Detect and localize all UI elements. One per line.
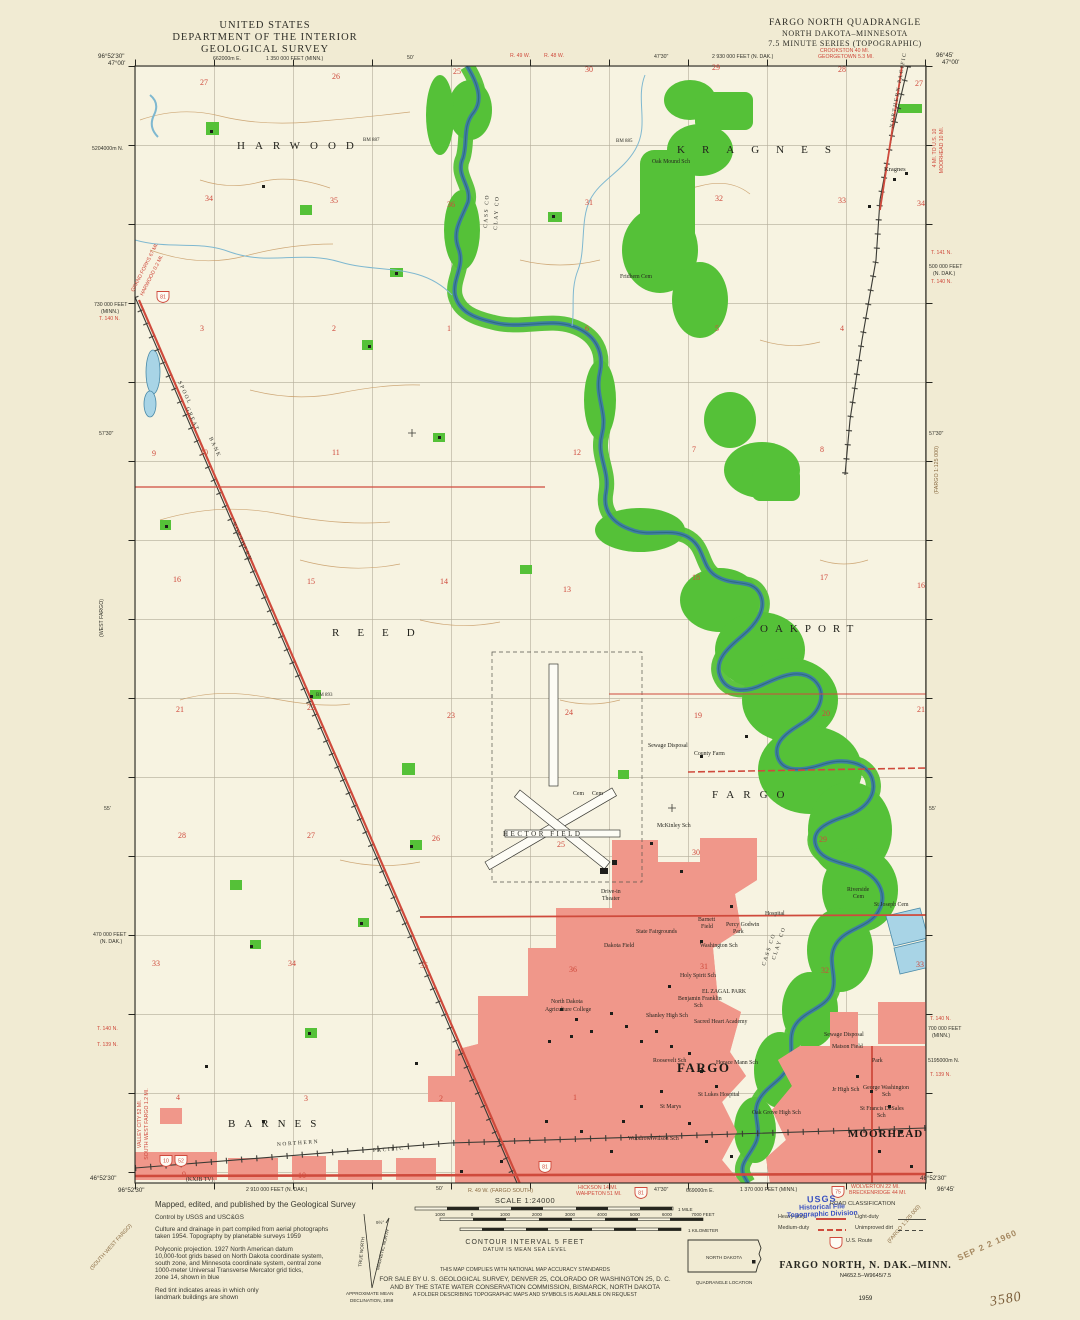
map-label: Drive-in	[601, 889, 621, 895]
map-label: 96°52'30"	[118, 1187, 145, 1194]
route-number: 81	[542, 1165, 548, 1171]
map-label: 1	[447, 324, 451, 333]
map-label: VALLEY CITY 52 MI.	[137, 1100, 143, 1148]
map-label: 27	[307, 831, 315, 840]
map-label: 33	[152, 959, 160, 968]
map-label: 36	[569, 965, 577, 974]
map-label: KRAGNES	[677, 144, 848, 156]
map-label: 1 KILOMETER	[688, 1228, 719, 1233]
map-label: Cem	[573, 791, 584, 797]
map-label: BM 887	[363, 138, 380, 143]
map-label: 30	[692, 848, 700, 857]
map-label: Cem	[592, 791, 603, 797]
map-label: 10	[298, 1171, 306, 1180]
map-label: 96°52'30"	[98, 53, 125, 60]
map-label: Oak Mound Sch	[652, 159, 690, 165]
map-label: 9	[152, 449, 156, 458]
map-label: OAKPORT	[760, 623, 860, 635]
map-label: 500 000 FEET	[929, 264, 963, 270]
map-label: 31	[700, 962, 708, 971]
map-label: 8	[820, 445, 824, 454]
map-label: 57'30"	[99, 431, 114, 437]
map-label: 21	[917, 705, 925, 714]
map-label: 7000 FEET	[691, 1212, 714, 1217]
map-label: BM 893	[316, 693, 333, 698]
map-label: Roosevelt Sch	[653, 1058, 686, 1064]
quad-states: NORTH DAKOTA–MINNESOTA	[728, 29, 962, 39]
unimproved-dirt-line-sample	[898, 1230, 926, 1231]
map-label: Field	[701, 924, 713, 930]
map-label: T. 140 N.	[99, 316, 120, 322]
map-label: Riverside	[847, 887, 870, 893]
map-label: Park	[733, 929, 744, 935]
usgs-historical-stamp: USGS Historical File Topographic Divisio…	[766, 1192, 879, 1220]
contour-interval: CONTOUR INTERVAL 5 FEET	[310, 1239, 740, 1246]
topo-map-svg: 811052818175 HARWOODKRAGNESREEDOAKPORTFA…	[0, 0, 1080, 1320]
heavy-duty-line-sample	[816, 1218, 846, 1220]
map-label: 29	[819, 835, 827, 844]
map-label: 47°00'	[942, 59, 959, 66]
map-label: Barnett	[698, 917, 715, 923]
us-route-shield: 81	[157, 292, 169, 303]
quad-series: 7.5 MINUTE SERIES (TOPOGRAPHIC)	[728, 39, 962, 49]
map-label: MOORHEAD	[848, 1128, 923, 1140]
map-label: Kragnes	[884, 166, 906, 173]
map-sheet: 811052818175 HARWOODKRAGNESREEDOAKPORTFA…	[0, 0, 1080, 1320]
map-label: 35	[330, 196, 338, 205]
datum-note: DATUM IS MEAN SEA LEVEL	[310, 1247, 740, 1253]
map-label: NORTH DAKOTA	[706, 1255, 743, 1260]
map-label: Sch	[882, 1092, 891, 1098]
map-label: (WEST FARGO)	[99, 599, 105, 637]
map-label: 5	[715, 324, 719, 333]
map-label: 4000	[597, 1212, 608, 1217]
map-label: 23	[447, 711, 455, 720]
map-label: 2000	[532, 1212, 543, 1217]
map-label: 33	[838, 196, 846, 205]
map-label: BM 885	[616, 139, 633, 144]
sheet-title: FARGO NORTH, N. DAK.–MINN.	[768, 1260, 963, 1271]
agency-line-2: DEPARTMENT OF THE INTERIOR	[140, 32, 390, 44]
map-label: 18	[692, 573, 700, 582]
scale-label: SCALE 1:24000	[310, 1196, 740, 1205]
map-label: 25	[453, 67, 461, 76]
map-label: 470 000 FEET	[93, 932, 127, 938]
map-label: St Lukes Hospital	[698, 1092, 740, 1098]
map-label: R. 49 W.	[510, 53, 530, 59]
map-label: 12	[573, 448, 581, 457]
map-label: 4 MI. TO U.S. 10	[932, 129, 938, 168]
map-label: T. 139 N.	[97, 1042, 118, 1048]
map-label: 1000	[435, 1212, 446, 1217]
us-route-label: U.S. Route	[846, 1238, 872, 1244]
credit-line: Control by USGS and USC&GS	[155, 1214, 407, 1221]
map-label: (KXJB TV)	[186, 1176, 213, 1183]
map-label: 47'30"	[654, 1187, 669, 1193]
map-label: 4	[176, 1093, 180, 1102]
map-label: 47°00'	[108, 60, 125, 67]
credit-line: Culture and drainage in part compiled fr…	[155, 1226, 407, 1233]
map-label: EL ZAGAL PARK	[702, 989, 747, 995]
map-label: St Joseph Cem	[874, 902, 909, 908]
map-label: 26	[332, 72, 340, 81]
map-label: 2	[332, 324, 336, 333]
map-label: 17	[820, 573, 828, 582]
map-label: (FARGO 1:125 000)	[934, 446, 940, 494]
map-label: HARWOOD	[237, 140, 364, 152]
map-label: Washington Sch	[700, 943, 738, 949]
map-label: 46°52'30"	[920, 1175, 947, 1182]
map-label: (N. DAK.)	[933, 271, 955, 277]
sheet-title-block: FARGO NORTH, N. DAK.–MINN. N4652.5–W9645…	[768, 1260, 963, 1302]
map-label: 19	[694, 711, 702, 720]
light-duty-line-sample	[898, 1219, 926, 1220]
map-label: Horace Mann Sch	[716, 1060, 758, 1066]
map-label: Agriculture College	[545, 1007, 592, 1013]
map-label: 2 910 000 FEET (N. DAK.)	[246, 1187, 308, 1193]
map-label: HECTOR FIELD	[503, 830, 582, 838]
map-label: 24	[565, 708, 573, 717]
map-label: 730 000 FEET	[94, 302, 128, 308]
map-label: 34	[205, 194, 213, 203]
route-number: 10	[163, 1159, 169, 1165]
map-label: 1000	[500, 1212, 511, 1217]
map-label: 20	[822, 709, 830, 718]
map-label: Theater	[602, 896, 620, 902]
map-label: 33	[916, 960, 924, 969]
sale-note-3: A FOLDER DESCRIBING TOPOGRAPHIC MAPS AND…	[310, 1292, 740, 1298]
map-label: 55'	[929, 806, 936, 812]
map-label: (N. DAK.)	[100, 939, 122, 945]
map-label: 3000	[565, 1212, 576, 1217]
road-class-dirt-label: Unimproved dirt	[855, 1225, 893, 1231]
map-label: Benjamin Franklin	[678, 996, 722, 1002]
credit-line: 10,000-foot grids based on North Dakota …	[155, 1253, 407, 1260]
medium-duty-line-sample	[818, 1229, 846, 1231]
map-label: 662000m E.	[213, 56, 241, 62]
map-label: 26	[432, 834, 440, 843]
map-label: Percy Godwin	[726, 922, 759, 928]
map-label: 6000	[662, 1212, 673, 1217]
map-label: Sacred Heart Academy	[694, 1019, 748, 1025]
map-label: 25	[557, 840, 565, 849]
agency-line-1: UNITED STATES	[140, 20, 390, 32]
map-label: 13	[563, 585, 571, 594]
map-label: 31	[585, 198, 593, 207]
map-label: 1 370 000 FEET (MINN.)	[740, 1187, 798, 1193]
map-label: 34	[288, 959, 296, 968]
accuracy-note: THIS MAP COMPLIES WITH NATIONAL MAP ACCU…	[310, 1267, 740, 1273]
map-label: 7	[692, 445, 696, 454]
map-label: 47'30"	[654, 54, 669, 60]
map-label: 3	[304, 1094, 308, 1103]
us-route-shield: 10	[160, 1156, 172, 1167]
map-label: 34	[917, 199, 925, 208]
map-label: 96°45'	[937, 1186, 954, 1193]
sheet-year: 1959	[768, 1295, 963, 1302]
map-label: 27	[915, 79, 923, 88]
map-label: Oak Grove High Sch	[752, 1110, 801, 1116]
map-label: 16	[917, 581, 925, 590]
road-class-medium-label: Medium-duty	[778, 1225, 809, 1231]
map-label: Matson Field	[832, 1044, 863, 1050]
map-label: 22	[307, 703, 315, 712]
map-label: 5204000m N.	[92, 146, 123, 152]
map-label: 14	[440, 577, 448, 586]
map-label: St Francis DeSales	[860, 1106, 905, 1112]
map-label: 55'	[104, 806, 111, 812]
map-label: 9	[182, 1170, 186, 1179]
map-label: Sch	[694, 1003, 703, 1009]
sale-note-2: AND BY THE STATE WATER CONSERVATION COMM…	[310, 1284, 740, 1291]
header-agency: UNITED STATES DEPARTMENT OF THE INTERIOR…	[140, 20, 390, 56]
map-label: (MINN.)	[101, 309, 119, 315]
map-label: Shanley High Sch	[646, 1013, 688, 1019]
route-number: 52	[178, 1159, 184, 1165]
header-quadrangle: FARGO NORTH QUADRANGLE NORTH DAKOTA–MINN…	[728, 18, 962, 49]
map-label: 0	[471, 1212, 474, 1217]
map-label: 11	[332, 448, 340, 457]
map-label: Jr High Sch	[832, 1087, 859, 1093]
map-label: T. 140 N.	[97, 1026, 118, 1032]
map-label: Holy Spirit Sch	[680, 973, 716, 979]
map-label: 28	[178, 831, 186, 840]
map-label: County Farm	[694, 751, 725, 757]
map-label: REED	[332, 627, 433, 639]
map-label: Cem	[853, 894, 864, 900]
map-label: 32	[821, 966, 829, 975]
agency-line-3: GEOLOGICAL SURVEY	[140, 44, 390, 56]
map-label: 21	[176, 705, 184, 714]
map-label: FARGO	[712, 789, 793, 801]
quad-location-dot	[752, 1260, 756, 1264]
map-label: Sewage Disposal	[648, 743, 688, 749]
map-label: 27	[200, 78, 208, 87]
map-label: 30	[585, 65, 593, 74]
map-label: 2	[439, 1094, 443, 1103]
map-label: 46°52'30"	[90, 1175, 117, 1182]
map-label: 35	[420, 961, 428, 970]
map-label: R. 49 W. (FARGO SOUTH)	[468, 1188, 533, 1194]
map-label: 50'	[407, 55, 414, 61]
map-label: 32	[715, 194, 723, 203]
map-label: 10	[200, 448, 208, 457]
map-label: 6	[585, 324, 589, 333]
map-label: 16	[173, 575, 181, 584]
map-label: North Dakota	[551, 999, 583, 1005]
map-label: R. 48 W.	[544, 53, 564, 59]
map-label: 1 MILE	[678, 1207, 693, 1212]
map-label: 29	[712, 63, 720, 72]
route-number: 81	[160, 295, 166, 301]
map-label: T. 141 N.	[931, 250, 952, 256]
map-label: 4	[840, 324, 844, 333]
map-label: 2 930 000 FEET (N. DAK.)	[712, 54, 774, 60]
map-label: GEORGETOWN 5.3 MI.	[818, 54, 874, 60]
map-label: 36	[447, 200, 455, 209]
map-label: Hospital	[765, 911, 785, 917]
map-label: Sewage Disposal	[824, 1032, 864, 1038]
map-label: 50'	[436, 1186, 443, 1192]
map-label: Dakota Field	[604, 943, 634, 949]
map-label: Park	[872, 1058, 883, 1064]
map-label: 700 000 FEET	[928, 1026, 962, 1032]
map-label: 5000	[630, 1212, 641, 1217]
map-label: 15	[307, 577, 315, 586]
map-label: (SOUTH WEST FARGO)	[89, 1223, 134, 1272]
map-label: McKinley Sch	[657, 823, 691, 829]
map-label: (MINN.)	[932, 1033, 950, 1039]
map-label: T. 140 N.	[931, 279, 952, 285]
map-label: 1	[573, 1093, 577, 1102]
map-label: 28	[838, 65, 846, 74]
us-route-shield: 81	[539, 1162, 551, 1173]
quad-title: FARGO NORTH QUADRANGLE	[728, 18, 962, 29]
map-label: 5195000m N.	[928, 1058, 959, 1064]
map-label: BARNES	[228, 1118, 325, 1130]
map-label: 96°45'	[936, 52, 953, 59]
map-label: T. 139 N.	[930, 1072, 951, 1078]
map-label: State Fairgrounds	[636, 929, 678, 935]
map-label: Fridhem Cem	[620, 274, 653, 280]
map-label: George Washington	[863, 1085, 909, 1091]
scale-bars	[415, 1207, 703, 1231]
map-label: 1 350 000 FEET (MINN.)	[266, 56, 324, 62]
map-label: T. 140 N.	[930, 1016, 951, 1022]
sale-note-1: FOR SALE BY U. S. GEOLOGICAL SURVEY, DEN…	[310, 1276, 740, 1283]
map-label: 669000m E.	[686, 1188, 714, 1194]
map-label: MOORHEAD 10 MI.	[939, 127, 945, 173]
map-label: Sch	[877, 1113, 886, 1119]
map-label: 57'30"	[929, 431, 944, 437]
map-label: 3	[200, 324, 204, 333]
sheet-reference: N4652.5–W9645/7.5	[768, 1273, 963, 1279]
map-label: Woodrow Wilson Sch	[628, 1136, 679, 1142]
map-label: SOUTH WEST FARGO 1.2 MI.	[144, 1088, 150, 1159]
us-route-shield: 52	[175, 1156, 187, 1167]
map-label: St Marys	[660, 1104, 682, 1110]
us-route-shield	[830, 1238, 842, 1249]
